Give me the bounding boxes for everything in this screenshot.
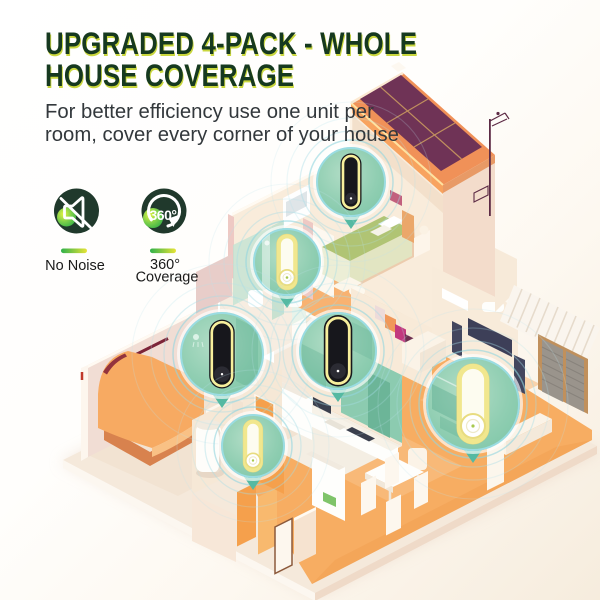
svg-text:360°: 360° [150,207,177,223]
svg-text:No Noise: No Noise [45,258,105,274]
svg-text:Coverage: Coverage [136,269,199,285]
